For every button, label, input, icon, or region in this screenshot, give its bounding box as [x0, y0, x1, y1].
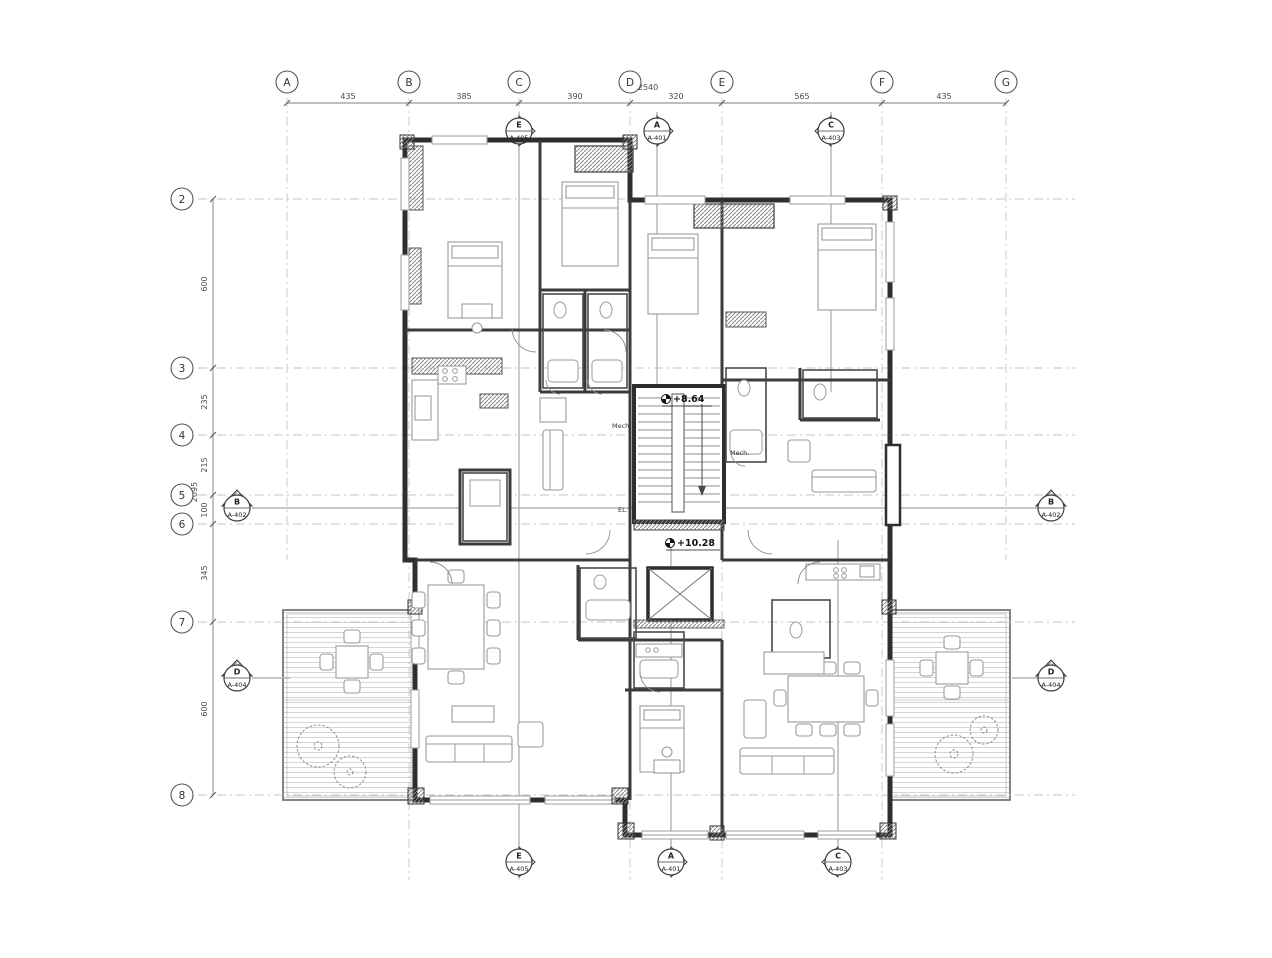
dim-left-1: 600	[200, 276, 209, 291]
dim-top-6: 435	[936, 92, 951, 101]
svg-text:A-401: A-401	[647, 134, 666, 142]
elevator-label: EL.	[618, 506, 628, 514]
svg-text:B: B	[405, 77, 412, 89]
section-marker-bottom-c: C A-403	[822, 847, 851, 877]
dim-top-1: 435	[340, 92, 355, 101]
grid-bubble-row-3: 3	[171, 357, 193, 379]
grid-bubble-col-e: E	[711, 71, 733, 93]
mech-label-1: Mech.	[612, 422, 631, 430]
mech-label-2: Mech.	[730, 449, 749, 457]
svg-text:C: C	[515, 77, 522, 89]
svg-text:5: 5	[179, 490, 186, 502]
grid-bubble-row-7: 7	[171, 611, 193, 633]
grid-bubbles-rows: 2 3 4 5 6 7 8	[171, 188, 193, 806]
elevator-shaft	[634, 568, 724, 628]
section-marker-right-d: D A-404	[1036, 660, 1066, 691]
grid-bubble-col-b: B	[398, 71, 420, 93]
svg-text:A-404: A-404	[1041, 681, 1060, 689]
dimension-string-left: 600 235 215 100 345 600 2095	[190, 196, 216, 798]
svg-text:A: A	[283, 77, 291, 89]
svg-text:A: A	[668, 852, 675, 861]
grid-bubble-col-c: C	[508, 71, 530, 93]
svg-text:A-405: A-405	[509, 865, 528, 873]
dim-top-4: 320	[668, 92, 683, 101]
svg-text:B: B	[1048, 498, 1054, 507]
dim-left-2: 235	[200, 394, 209, 409]
dim-left-4: 100	[200, 502, 209, 517]
grid-bubble-row-5: 5	[171, 484, 193, 506]
dim-left-3: 215	[200, 457, 209, 472]
sofa-center	[540, 398, 566, 490]
dim-top-3: 390	[567, 92, 582, 101]
svg-text:A-402: A-402	[227, 511, 246, 519]
grid-bubble-col-a: A	[276, 71, 298, 93]
svg-text:C: C	[835, 852, 841, 861]
svg-text:A-403: A-403	[821, 134, 840, 142]
floor-plan-canvas: 435 385 390 320 565 435 2540 600 235 215…	[0, 0, 1272, 958]
grid-bubble-row-2: 2	[171, 188, 193, 210]
svg-text:4: 4	[179, 430, 186, 442]
dim-left-5: 345	[200, 565, 209, 580]
svg-text:3: 3	[179, 363, 186, 375]
svg-text:D: D	[626, 77, 634, 89]
svg-text:A-403: A-403	[828, 865, 847, 873]
bed	[648, 234, 698, 314]
section-marker-top-a: A A-401	[644, 116, 673, 146]
grid-bubble-row-8: 8	[171, 784, 193, 806]
kitchen-right	[806, 564, 880, 580]
drawing-sheet: 435 385 390 320 565 435 2540 600 235 215…	[0, 0, 1272, 958]
bed	[818, 224, 876, 310]
svg-text:G: G	[1002, 77, 1010, 89]
svg-text:E: E	[516, 852, 521, 861]
dim-top-2: 385	[456, 92, 471, 101]
grid-bubble-col-g: G	[995, 71, 1017, 93]
svg-text:D: D	[1048, 668, 1055, 677]
svg-text:B: B	[234, 498, 240, 507]
grid-bubble-col-f: F	[871, 71, 893, 93]
elevation-lower-label: +10.28	[677, 538, 715, 549]
section-marker-top-c: C A-403	[815, 116, 844, 146]
svg-text:7: 7	[179, 617, 186, 629]
grid-bubble-row-4: 4	[171, 424, 193, 446]
section-marker-left-d: D A-404	[222, 660, 252, 691]
grid-bubble-row-6: 6	[171, 513, 193, 535]
svg-text:F: F	[879, 77, 885, 89]
svg-text:E: E	[719, 77, 726, 89]
stair-core	[634, 386, 724, 530]
section-marker-left-b: B A-402	[222, 490, 252, 521]
section-marker-bottom-a: A A-401	[658, 847, 687, 877]
dim-top-5: 565	[794, 92, 809, 101]
kitchenette	[636, 644, 682, 657]
svg-text:D: D	[234, 668, 241, 677]
svg-text:A: A	[654, 121, 661, 130]
dim-left-6: 600	[200, 701, 209, 716]
section-marker-bottom-e: E A-405	[506, 847, 535, 877]
dimension-string-top: 435 385 390 320 565 435 2540	[284, 83, 1009, 106]
svg-text:A-404: A-404	[227, 681, 246, 689]
bed	[562, 182, 618, 266]
svg-text:2: 2	[179, 194, 186, 206]
elevation-upper-label: +8.64	[673, 394, 705, 405]
svg-text:A-401: A-401	[661, 865, 680, 873]
svg-text:C: C	[828, 121, 834, 130]
svg-text:6: 6	[179, 519, 186, 531]
svg-text:E: E	[516, 121, 521, 130]
svg-text:A-402: A-402	[1041, 511, 1060, 519]
grid-bubble-col-d: D	[619, 71, 641, 93]
svg-text:8: 8	[179, 790, 186, 802]
